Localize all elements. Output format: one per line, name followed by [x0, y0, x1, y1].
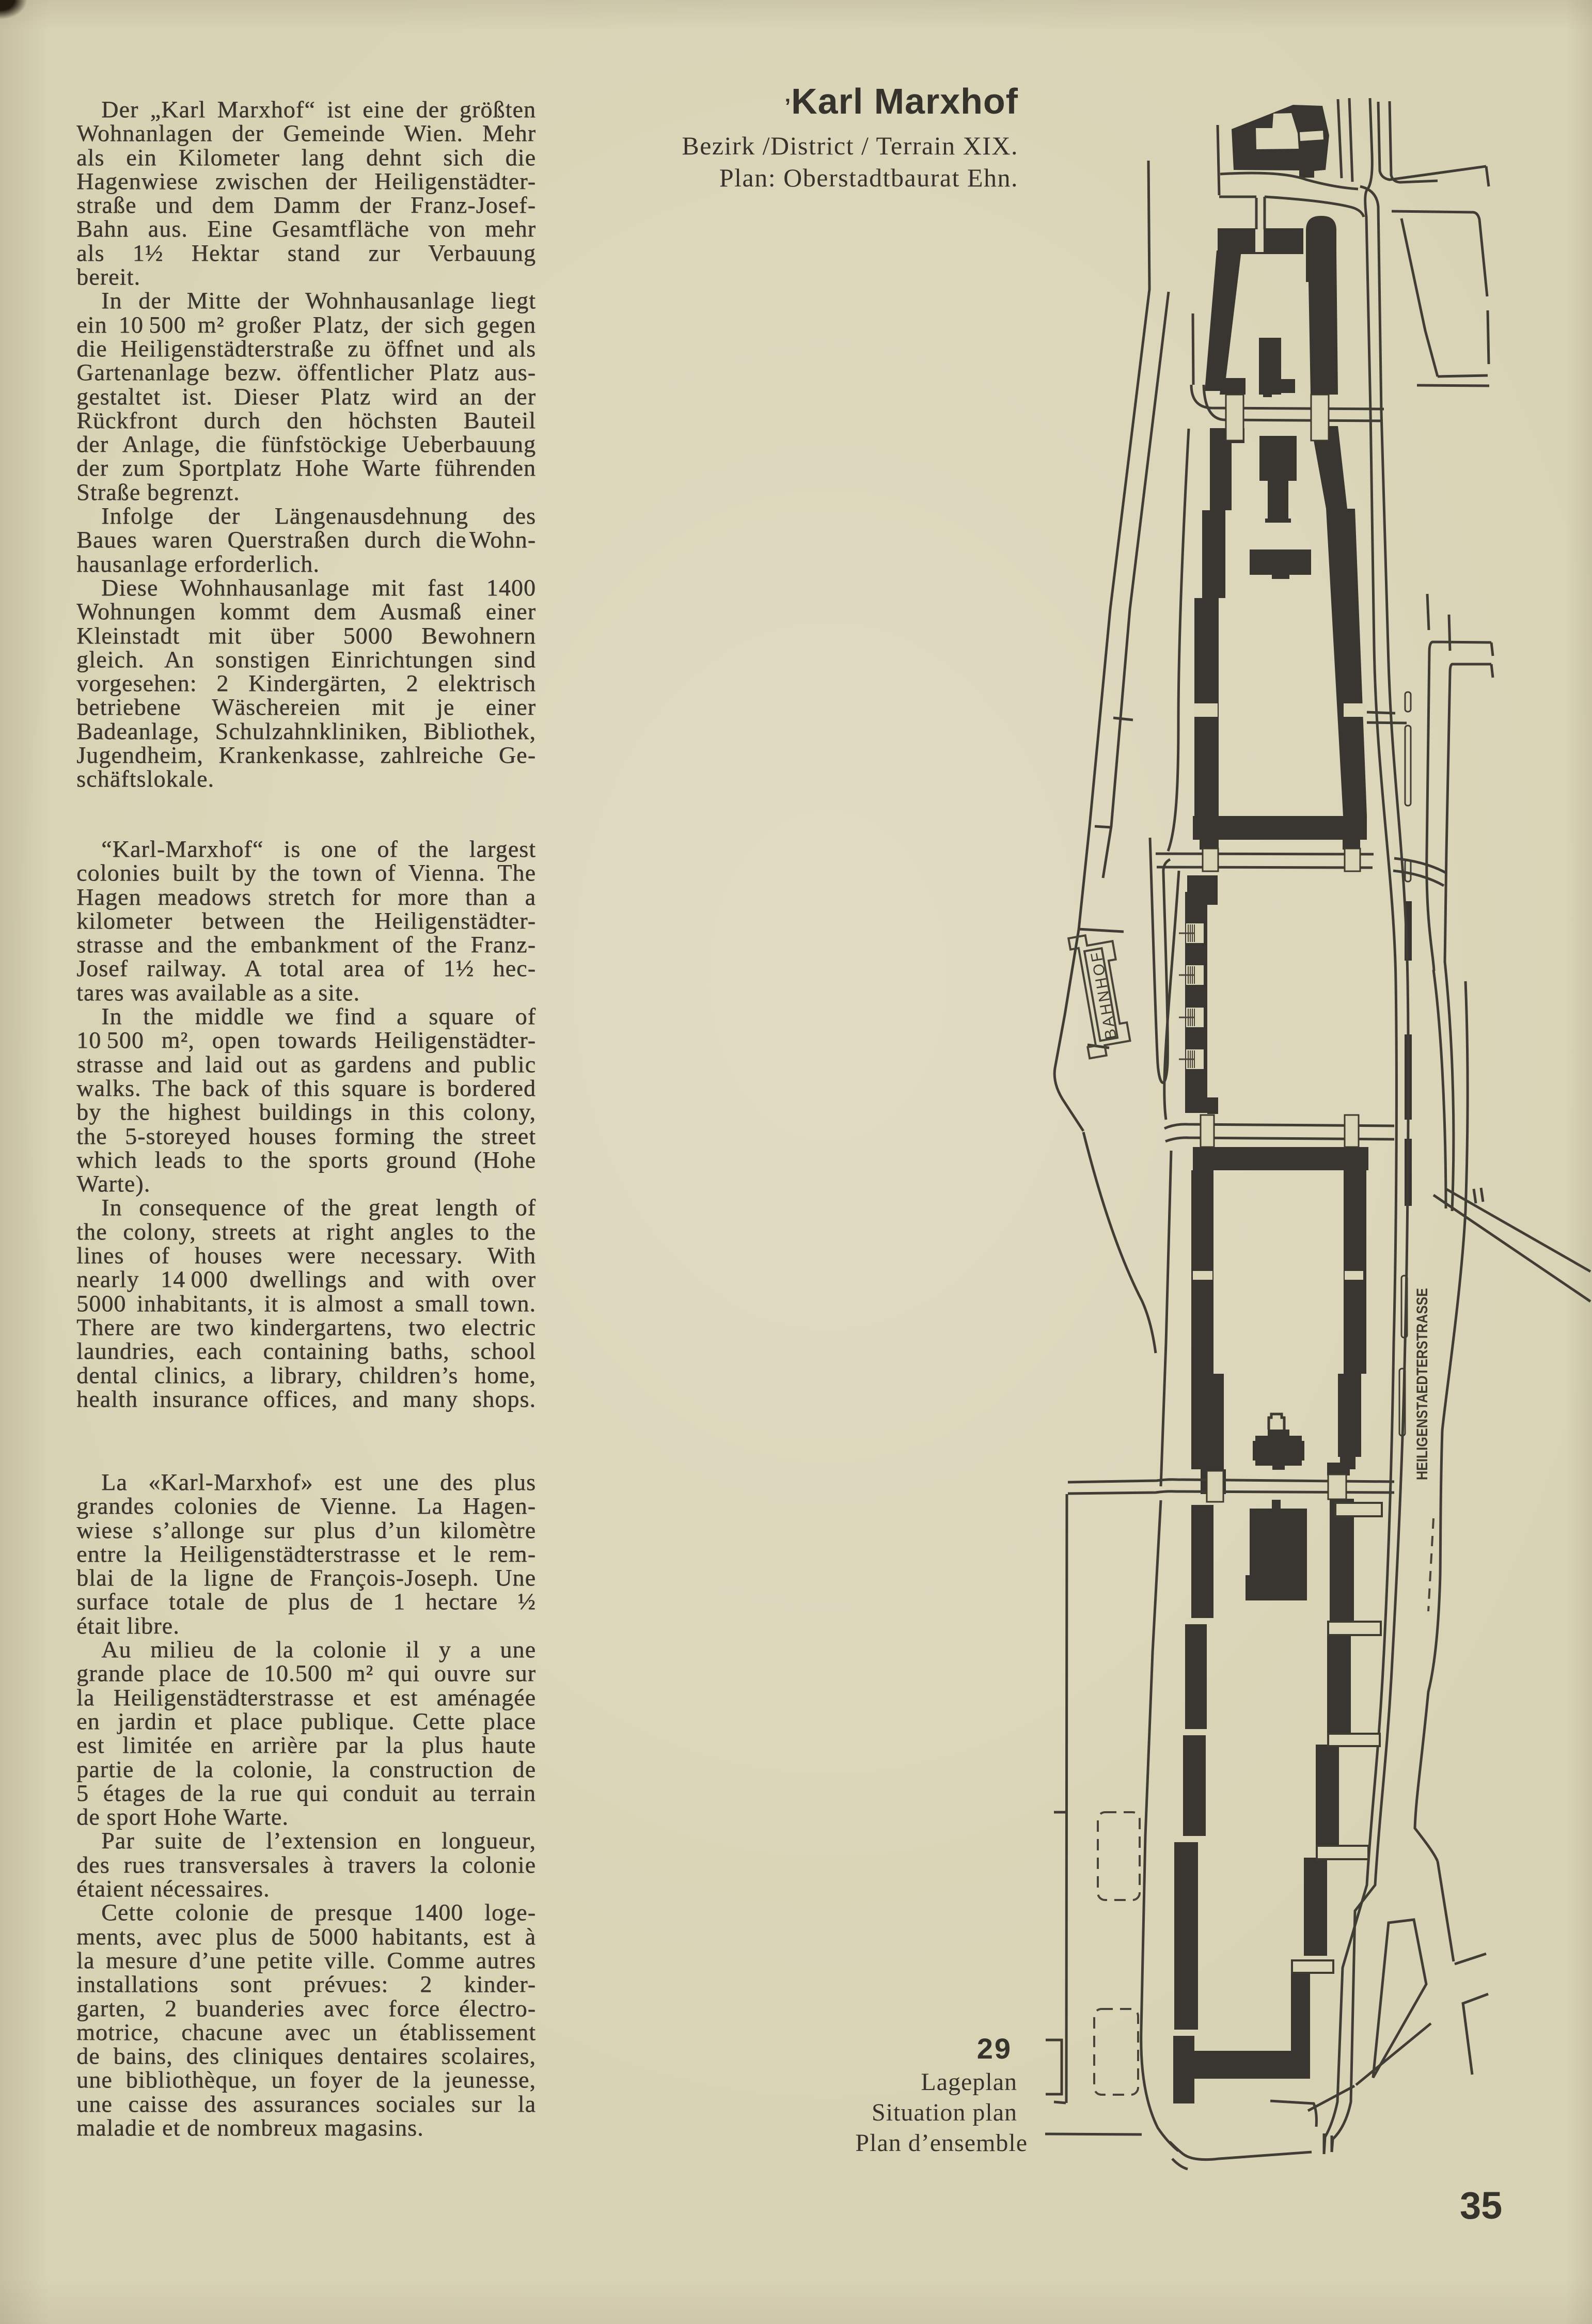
svg-text:HEILIGENSTAEDTERSTRASSE: HEILIGENSTAEDTERSTRASSE — [1414, 1288, 1431, 1480]
